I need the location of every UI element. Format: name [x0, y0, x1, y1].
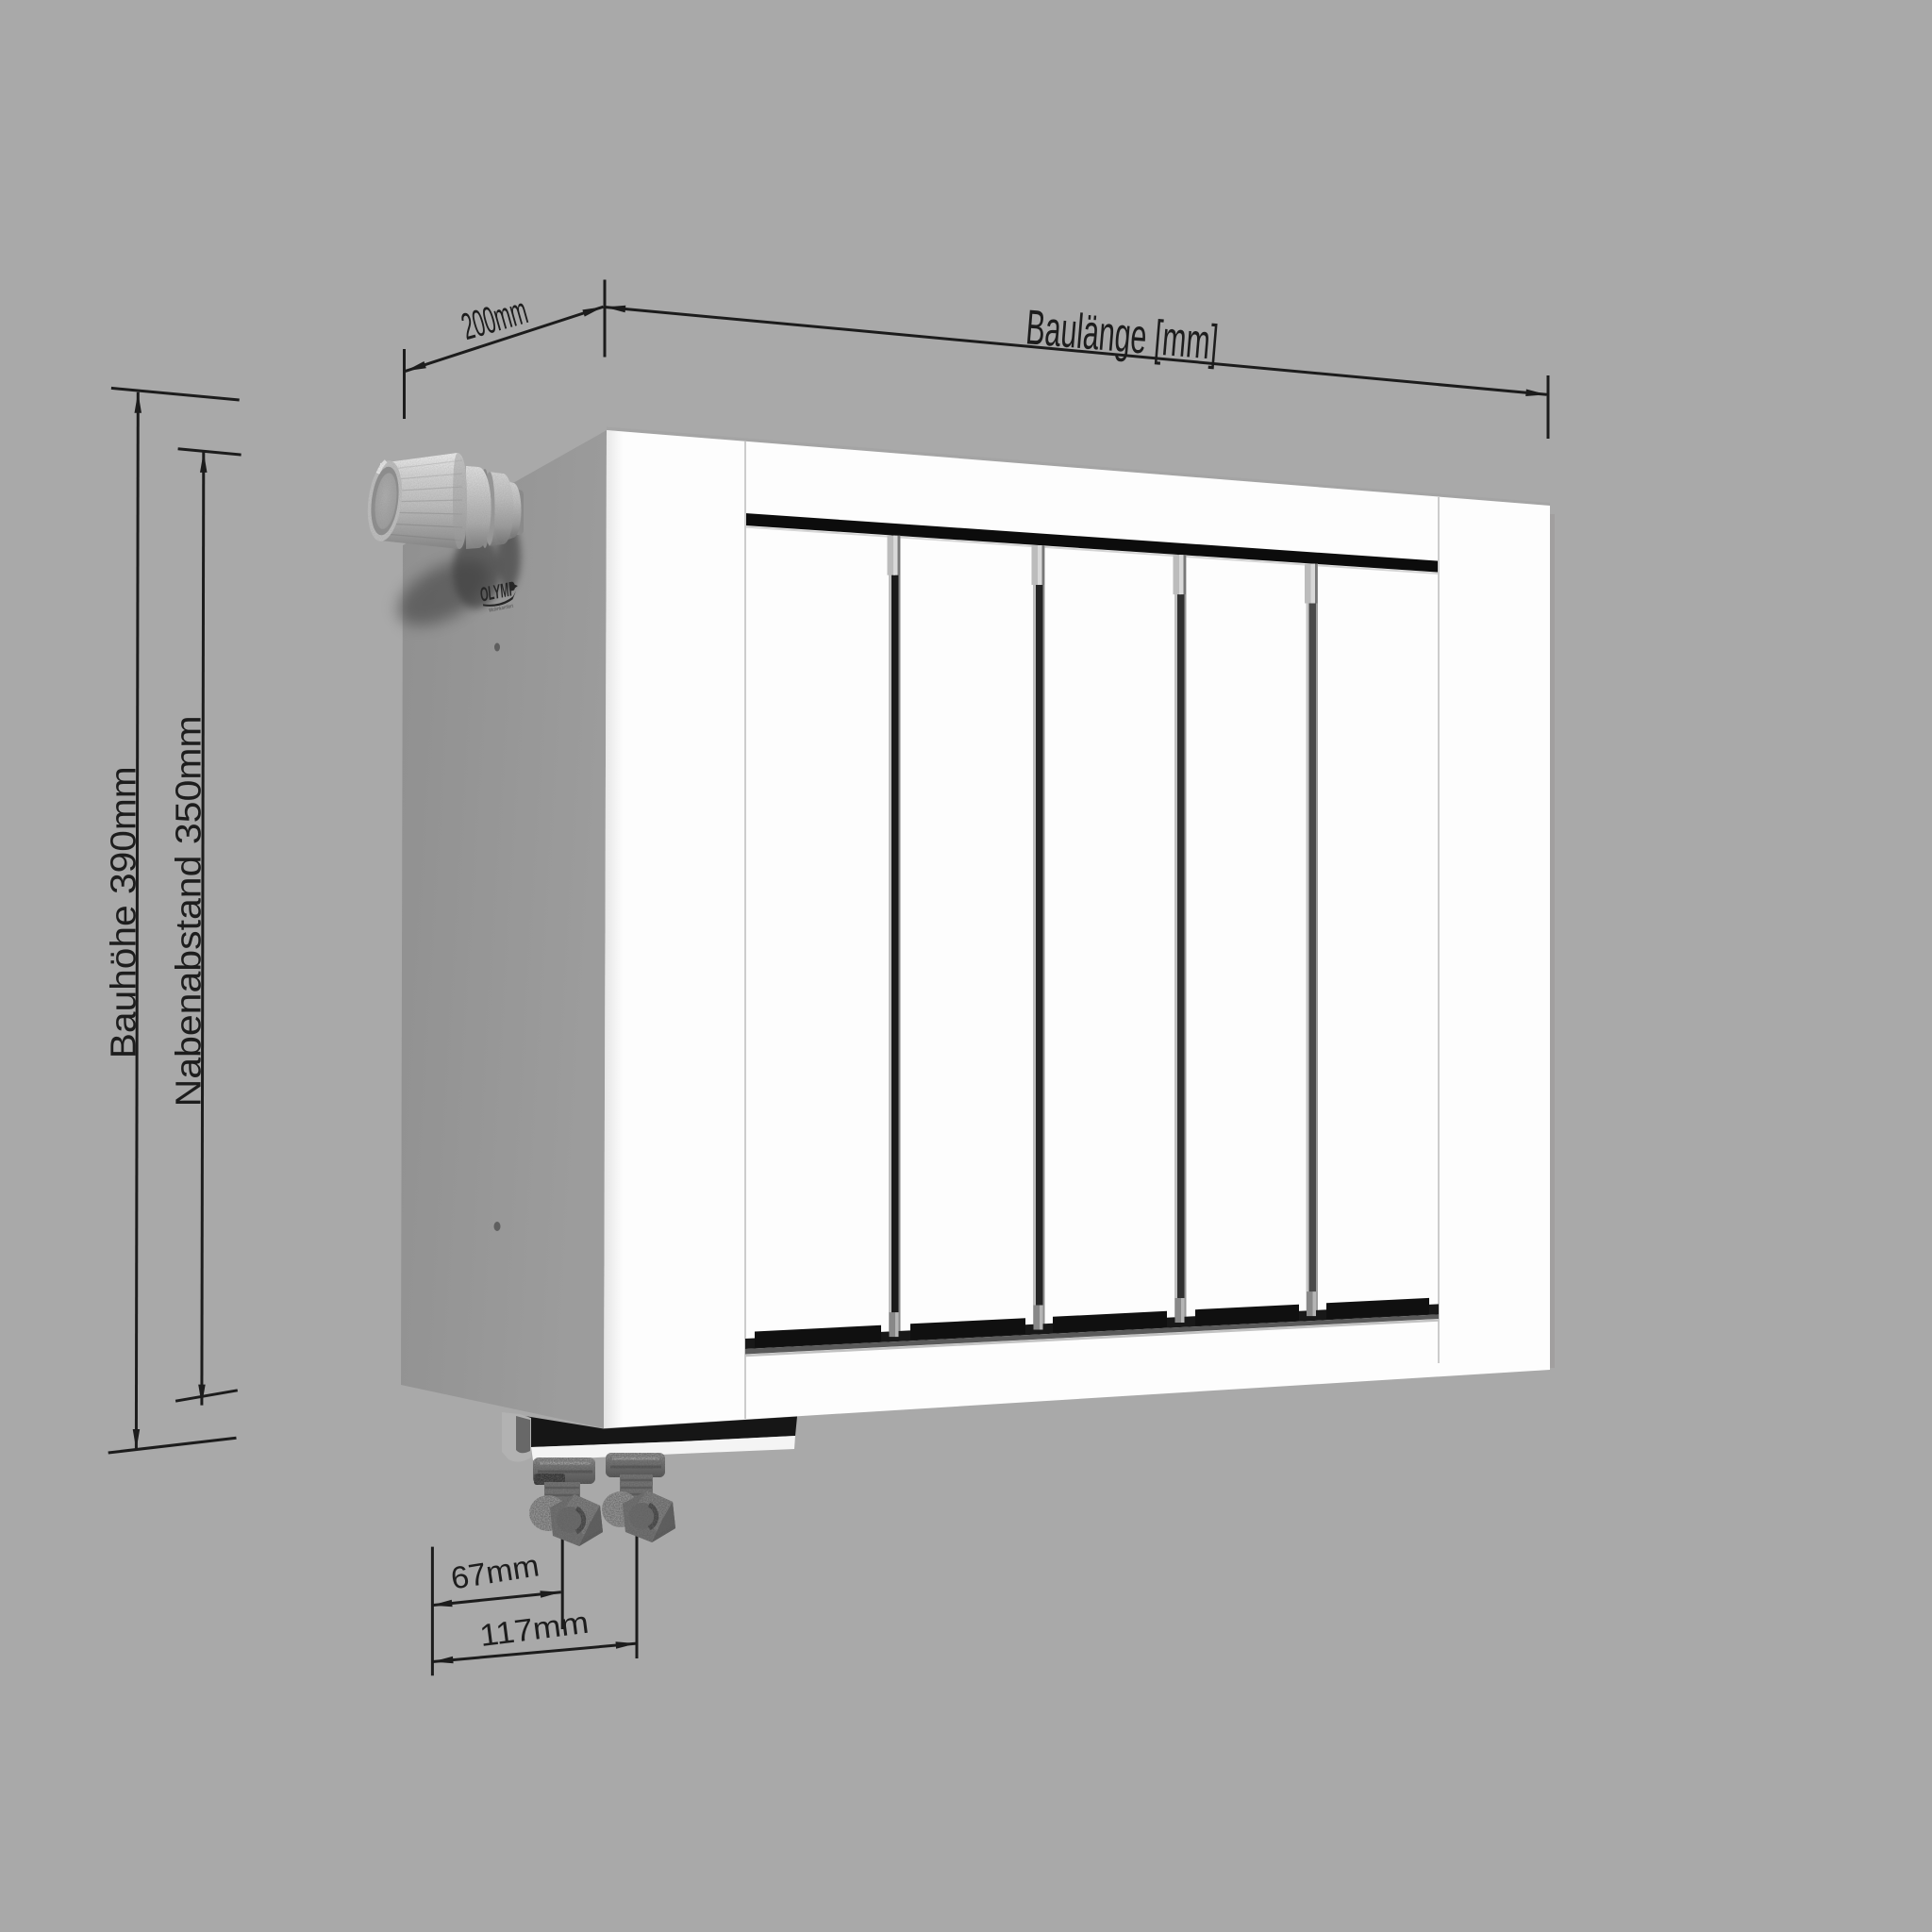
svg-text:Bauhöhe 390mm: Bauhöhe 390mm [105, 766, 144, 1058]
svg-text:Nabenabstand 350mm: Nabenabstand 350mm [170, 715, 209, 1107]
